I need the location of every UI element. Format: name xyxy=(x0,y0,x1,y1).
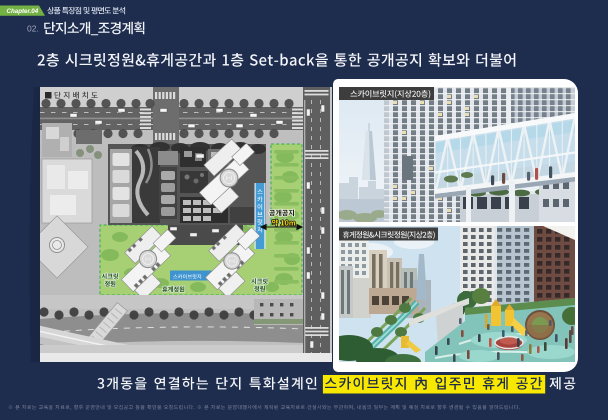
svg-text:02.: 02. xyxy=(27,24,39,34)
svg-text:Chapter.04: Chapter.04 xyxy=(7,8,39,15)
